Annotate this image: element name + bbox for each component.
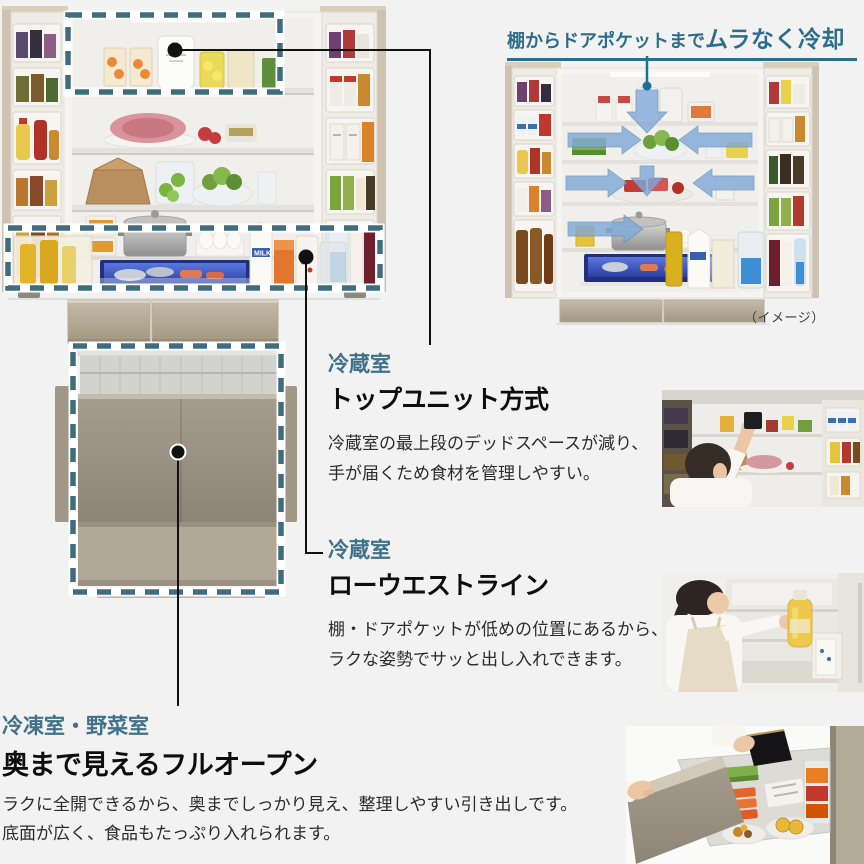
feature-full-open: 冷凍室・野菜室 奥まで見えるフルオープン ラクに全開できるから、奥までしっかり見… (2, 714, 602, 848)
photo-low-waist-pocket (662, 573, 864, 692)
feature-low-waist-body-line1: 棚・ドアポケットが低めの位置にあるから、 (328, 615, 668, 645)
photo-reaching-top-shelf (662, 390, 864, 508)
feature-low-waist: 冷蔵室 ローウエストライン 棚・ドアポケットが低めの位置にあるから、 ラクな姿勢… (328, 538, 668, 675)
fridge-feature-page: MILK (0, 0, 864, 864)
feature-top-unit-title: トップユニット方式 (328, 385, 668, 415)
feature-full-open-category: 冷凍室・野菜室 (2, 714, 602, 740)
milk-carton-label: MILK (254, 251, 271, 258)
callout-dot-icon (299, 250, 314, 265)
callout-dot-icon (171, 445, 186, 460)
feature-top-unit-body-line2: 手が届くため食材を管理しやすい。 (328, 459, 668, 489)
photo-full-open-drawer (618, 726, 864, 864)
airflow-right-door-items (766, 76, 810, 292)
airflow-fridge-illustration (505, 56, 819, 325)
feature-low-waist-category: 冷蔵室 (328, 538, 668, 564)
feature-full-open-body-line1: ラクに全開できるから、奥までしっかり見え、整理しやすい引き出しです。 (2, 790, 602, 819)
feature-full-open-body-line2: 底面が広く、食品もたっぷり入れられます。 (2, 819, 602, 848)
cooling-feature-title: 棚からドアポケットまでムラなく冷却 (507, 27, 857, 61)
cooling-title-bold: ムラなく冷却 (705, 26, 845, 52)
callout-low-waist (299, 250, 324, 554)
feature-top-unit-body-line1: 冷蔵室の最上段のデッドスペースが減り、 (328, 429, 668, 459)
cooling-title-regular: 棚からドアポケットまで (507, 31, 705, 51)
callout-dot-icon (168, 43, 183, 58)
feature-low-waist-title: ローウエストライン (328, 571, 668, 601)
feature-top-unit-category: 冷蔵室 (328, 352, 668, 378)
feature-low-waist-body-line2: ラクな姿勢でサッと出し入れできます。 (328, 645, 668, 675)
feature-top-unit: 冷蔵室 トップユニット方式 冷蔵室の最上段のデッドスペースが減り、 手が届くため… (328, 352, 668, 489)
feature-full-open-title: 奥まで見えるフルオープン (2, 748, 602, 782)
image-caption: （イメージ） (744, 307, 825, 326)
